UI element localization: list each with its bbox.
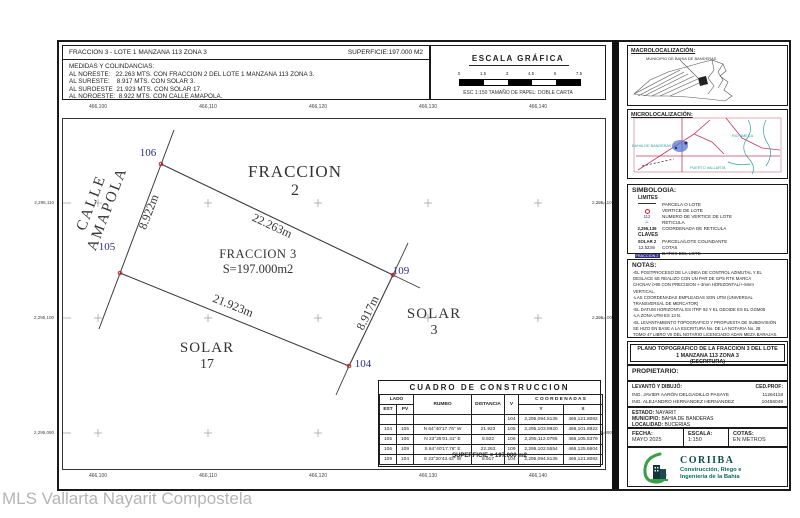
medidas-line: AL SUROESTE 21.923 MTS. CON SOLAR 17. [69, 86, 314, 93]
simbologia-label: DATOS DEL LOTE [662, 251, 701, 256]
cuadro-cell: 8.922 [472, 435, 505, 445]
vertex-105-label: 105 [95, 241, 119, 253]
cuadro-cell: 2,295,094.5135 [519, 415, 564, 425]
cuadro-cell: 106 [505, 435, 519, 445]
levanto-label: LEVANTÓ Y DIBUJÓ: [632, 384, 682, 390]
macro-map [628, 58, 789, 106]
simbologia-item: 2,295,136COORDENADA DE RETICULA [632, 225, 787, 231]
easting-label: 466,140 [518, 473, 558, 479]
ubicacion-box: ESTADO: NAYARIT MUNICIPIO: BAHIA DE BAND… [627, 407, 788, 428]
cuadro-cell [397, 415, 414, 425]
engineer-name: ING. ALEJANDRO HERNANDEZ HERNANDEZ [632, 399, 734, 406]
cuadro-cell: N 23°25'01.41" E [414, 435, 472, 445]
scale-tick-label: 3 [499, 71, 515, 76]
simbologia-item: FRACCION 2DATOS DEL LOTE [632, 250, 787, 256]
parcel-label-fraccion3: FRACCION 3 S=197.000m2 [208, 247, 308, 277]
vertex-109-label: 109 [389, 265, 413, 277]
cuadro-row: 105106N 23°25'01.41" E8.9221062,295,112.… [380, 435, 603, 445]
coriiba-name: CORIIBA [680, 455, 734, 466]
cedprof-label: CED.PROF: [756, 384, 784, 390]
simbologia-label: PARCELA O LOTE [662, 202, 701, 207]
escala-cell: ESCALA: 1:150 [684, 429, 729, 446]
northing-label: 2,295,110 [26, 200, 54, 205]
cuadro-header: LADO [380, 395, 414, 405]
medidas-line: AL SURESTE: 8.917 MTS. CON SOLAR 3. [69, 78, 314, 85]
medidas-line: AL NOROESTE: 8.922 MTS. CON CALLE AMAPOL… [69, 93, 314, 100]
cuadro-cell: 104 [380, 425, 397, 435]
cuadro-cell [380, 415, 397, 425]
cuadro-cell: 466,105.5379 [564, 435, 603, 445]
simbologia-symbol: SOLAR 2 [632, 239, 662, 244]
plano-title-line1: PLANO TOPOGRAFICO DE LA FRACCION 3 DEL L… [628, 346, 787, 352]
cuadro-cell: 105 [380, 435, 397, 445]
cuadro-header: Y [519, 405, 564, 415]
cuadro-header: X [564, 405, 603, 415]
simbologia-label: NUMERO DE VERTICE DE LOTE [662, 214, 732, 219]
vertex-106-label: 106 [136, 147, 160, 159]
medidas-title: MEDIDAS Y COLINDANCIAS: [69, 63, 154, 70]
cuadro-box: CUADRO DE CONSTRUCCION LADORUMBODISTANCI… [378, 380, 601, 467]
macro-highlight [698, 76, 708, 86]
propietario-label: PROPIETARIO: [632, 368, 678, 375]
notas-title: NOTAS: [632, 262, 656, 269]
nota-line: TOMO 47 LIBRO VII DEL NOTARIO LICENCIADO… [633, 332, 785, 338]
medidas-list: AL NORESTE: 22.263 MTS. CON FRACCION 2 D… [69, 71, 314, 101]
simbologia-symbol: ┴ [632, 220, 662, 225]
cuadro-cell: 466,101.8922 [564, 425, 603, 435]
levanto-box: LEVANTÓ Y DIBUJÓ: CED.PROF: ING. JAVIER … [627, 381, 788, 407]
scale-caption: ESC 1:150 TAMAÑO DE PAPEL: DOBLE CARTA [431, 90, 605, 96]
macro-box: MACROLOCALIZACIÓN: MUNICIPIO DE BAHIA DE… [627, 45, 788, 106]
easting-label: 466,130 [408, 104, 448, 110]
parcel-label-solar3: SOLAR 3 [403, 306, 465, 339]
propietario-box: PROPIETARIO: [627, 365, 788, 381]
engineer-name: ING. JAVIER AARÓN DELGADILLO PASAYE [632, 392, 729, 399]
header-box: FRACCION 3 - LOTE 1 MANZANA 113 ZONA 3 S… [62, 45, 430, 100]
simbologia-label: COTAS [662, 245, 677, 250]
macro-title: MACROLOCALIZACIÓN: [631, 48, 695, 54]
cuadro-cell: 104 [505, 415, 519, 425]
northing-label: 2,295,100 [26, 315, 54, 320]
micro-map-label: PUERTO VALLARTA [690, 166, 726, 170]
medidas-line: AL NORESTE: 22.263 MTS. CON FRACCION 2 D… [69, 71, 314, 78]
notas-box: NOTAS: -EL POSTPROCESO DE LA LINEA DE CO… [627, 259, 788, 338]
cuadro-cell: 466,121.8082 [564, 415, 603, 425]
survey-plan-sheet: FRACCION 3 - LOTE 1 MANZANA 113 ZONA 3 S… [0, 0, 800, 518]
cuadro-header: C O O R D E N A D A S [519, 395, 603, 405]
cuadro-cell: 105 [397, 425, 414, 435]
cuadro-row: 104105N 64°40'17.76" W21.9231052,295,103… [380, 425, 603, 435]
easting-label: 466,100 [78, 473, 118, 479]
meta-box: FECHA: MAYO 2025 ESCALA: 1:150 COTAS: EN… [627, 428, 788, 447]
cuadro-cell: 105 [505, 425, 519, 435]
cuadro-cell: 2,295,103.8920 [519, 425, 564, 435]
scale-title: ESCALA GRÁFICA [431, 54, 605, 63]
micro-map-label: BAHIA DE BANDERAS [632, 144, 671, 148]
northing-label: 2,295,090 [26, 430, 54, 435]
easting-label: 466,120 [298, 473, 338, 479]
superficie-label: SUPERFICIE:197.000 M2 [348, 49, 423, 56]
micro-map-label: RIO AMECA [732, 134, 753, 138]
cuadro-cell [472, 415, 505, 425]
scale-tick-label: 4.5 [523, 71, 539, 76]
lot-title: FRACCION 3 - LOTE 1 MANZANA 113 ZONA 3 [69, 49, 207, 56]
plano-title-box: PLANO TOPOGRAFICO DE LA FRACCION 3 DEL L… [627, 341, 788, 365]
cedula-number: 11264118 [762, 392, 783, 399]
nota-line: -EL LEVANTAMIENTO TOPOGRAFICO Y PROPUEST… [633, 320, 785, 326]
scale-bar [459, 79, 581, 86]
easting-label: 466,100 [78, 104, 118, 110]
scale-tick-label: 7.5 [571, 71, 587, 76]
fecha-cell: FECHA: MAYO 2025 [628, 429, 684, 446]
notas-lines: -EL POSTPROCESO DE LA LINEA DE CONTROL A… [633, 270, 785, 338]
scale-tick-label: 6 [547, 71, 563, 76]
cuadro-header: PV [397, 405, 414, 415]
simbologia-label: VERTICE DE LOTE [662, 208, 703, 213]
simbologia-label: COORDENADA DE RETICULA [662, 226, 726, 231]
simbologia-title: SIMBOLOGIA: [632, 187, 676, 194]
vertex-104-label: 104 [351, 358, 375, 370]
easting-label: 466,140 [518, 104, 558, 110]
cuadro-header: EST [380, 405, 397, 415]
parcel-label-fraccion2: FRACCION 2 [245, 162, 345, 200]
micro-box: MICROLOCALIZACIÓN: RIO AMECAPUERTO VALLA… [627, 109, 788, 179]
simbologia-symbol: 2,295,136 [632, 226, 662, 231]
scale-title-underline [469, 65, 569, 66]
simbologia-label: PARCELA/LOTE COLINDANTE [662, 239, 727, 244]
simbologia-box: SIMBOLOGIA: LIMITES PARCELA O LOTEVERTIC… [627, 184, 788, 254]
coriiba-logo-icon [640, 451, 672, 485]
parcel-label-solar17: SOLAR 17 [176, 340, 238, 373]
cuadro-superficie: SUPERFICIE = 197.000 m2 [379, 453, 600, 459]
simbologia-label: RETICULA [662, 220, 685, 225]
cuadro-cell: N 64°40'17.76" W [414, 425, 472, 435]
scale-box: ESCALA GRÁFICA 01.534.567.5 ESC 1:150 TA… [430, 45, 606, 100]
coriiba-tagline1: Construcción, Riego e [680, 467, 742, 473]
cuadro-cell: 21.923 [472, 425, 505, 435]
cuadro-cell: 2,295,112.0795 [519, 435, 564, 445]
cuadro-cell: 106 [397, 435, 414, 445]
cedula-number: 10456049 [762, 399, 783, 406]
header-title-row: FRACCION 3 - LOTE 1 MANZANA 113 ZONA 3 S… [63, 46, 429, 60]
levanto-row: ING. ALEJANDRO HERNANDEZ HERNANDEZ104560… [632, 399, 783, 406]
panel-divider [612, 40, 619, 489]
easting-label: 466,110 [188, 104, 228, 110]
cuadro-header: V [505, 395, 519, 415]
cuadro-row: 1042,295,094.5135466,121.8082 [380, 415, 603, 425]
ext-104-down [336, 366, 349, 395]
lot-data-symbol: FRACCION 2 [635, 254, 660, 258]
coriiba-tagline2: Ingeniería de la Bahía [680, 474, 740, 480]
scale-tick-label: 0 [451, 71, 467, 76]
cuadro-cell [414, 415, 472, 425]
cuadro-header: DISTANCIA [472, 395, 505, 415]
logo-box: CORIIBA Construcción, Riego e Ingeniería… [627, 447, 788, 487]
cuadro-header: RUMBO [414, 395, 472, 415]
easting-label: 466,120 [298, 104, 338, 110]
easting-label: 466,130 [408, 473, 448, 479]
simbologia-symbol: 112 [632, 214, 662, 219]
easting-label: 466,110 [188, 473, 228, 479]
micro-title: MICROLOCALIZACIÓN: [631, 112, 693, 118]
scale-tick-label: 1.5 [475, 71, 491, 76]
cotas-cell: COTAS: EN METROS [729, 429, 789, 446]
watermark: MLS Vallarta Nayarit Compostela [2, 489, 252, 509]
levanto-row: ING. JAVIER AARÓN DELGADILLO PASAYE11264… [632, 392, 783, 399]
